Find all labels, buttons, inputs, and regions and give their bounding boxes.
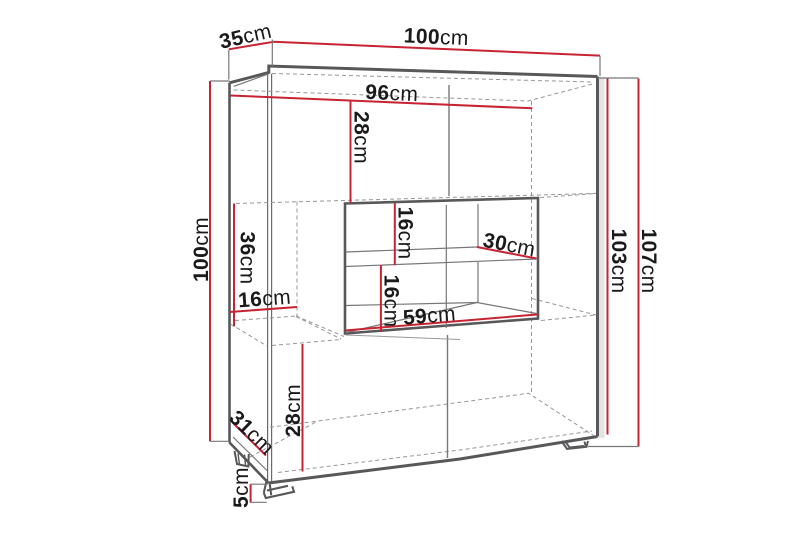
svg-text:16cm: 16cm: [379, 275, 402, 328]
svg-text:5cm: 5cm: [230, 467, 253, 508]
svg-text:100cm: 100cm: [190, 217, 213, 282]
svg-text:16cm: 16cm: [237, 286, 291, 313]
svg-text:107cm: 107cm: [637, 228, 660, 293]
svg-text:103cm: 103cm: [607, 228, 630, 293]
svg-text:28cm: 28cm: [282, 384, 305, 437]
svg-text:36cm: 36cm: [236, 232, 259, 285]
svg-text:16cm: 16cm: [393, 207, 416, 260]
svg-text:28cm: 28cm: [350, 111, 373, 164]
svg-text:100cm: 100cm: [403, 24, 469, 50]
svg-text:59cm: 59cm: [402, 302, 457, 329]
svg-text:96cm: 96cm: [365, 81, 419, 106]
